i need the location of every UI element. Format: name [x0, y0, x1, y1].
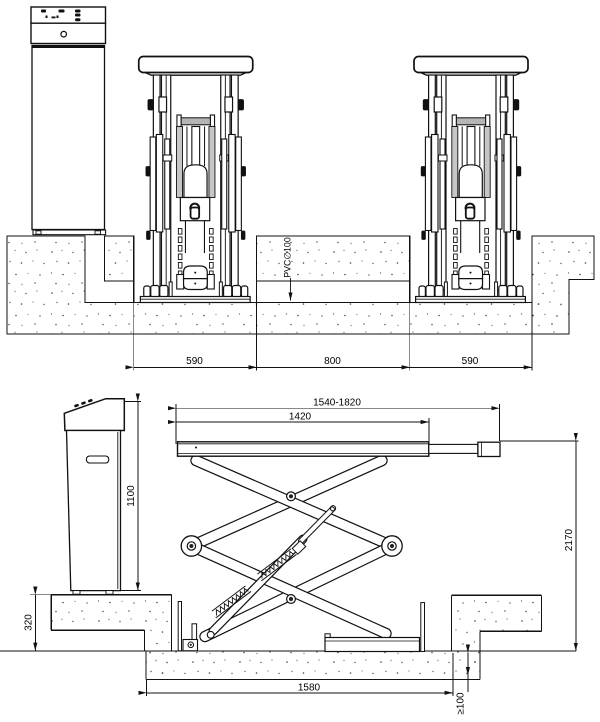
- svg-text:1580: 1580: [298, 682, 321, 693]
- svg-text:590: 590: [186, 356, 203, 367]
- svg-text:2170: 2170: [564, 528, 575, 551]
- svg-text:1420: 1420: [289, 412, 312, 423]
- svg-text:590: 590: [462, 356, 479, 367]
- svg-text:1100: 1100: [126, 485, 137, 507]
- svg-text:≥100: ≥100: [456, 692, 467, 715]
- svg-text:320: 320: [24, 614, 35, 631]
- svg-text:PVC∅100: PVC∅100: [282, 237, 292, 278]
- svg-text:1540-1820: 1540-1820: [313, 398, 361, 409]
- svg-text:800: 800: [324, 356, 341, 367]
